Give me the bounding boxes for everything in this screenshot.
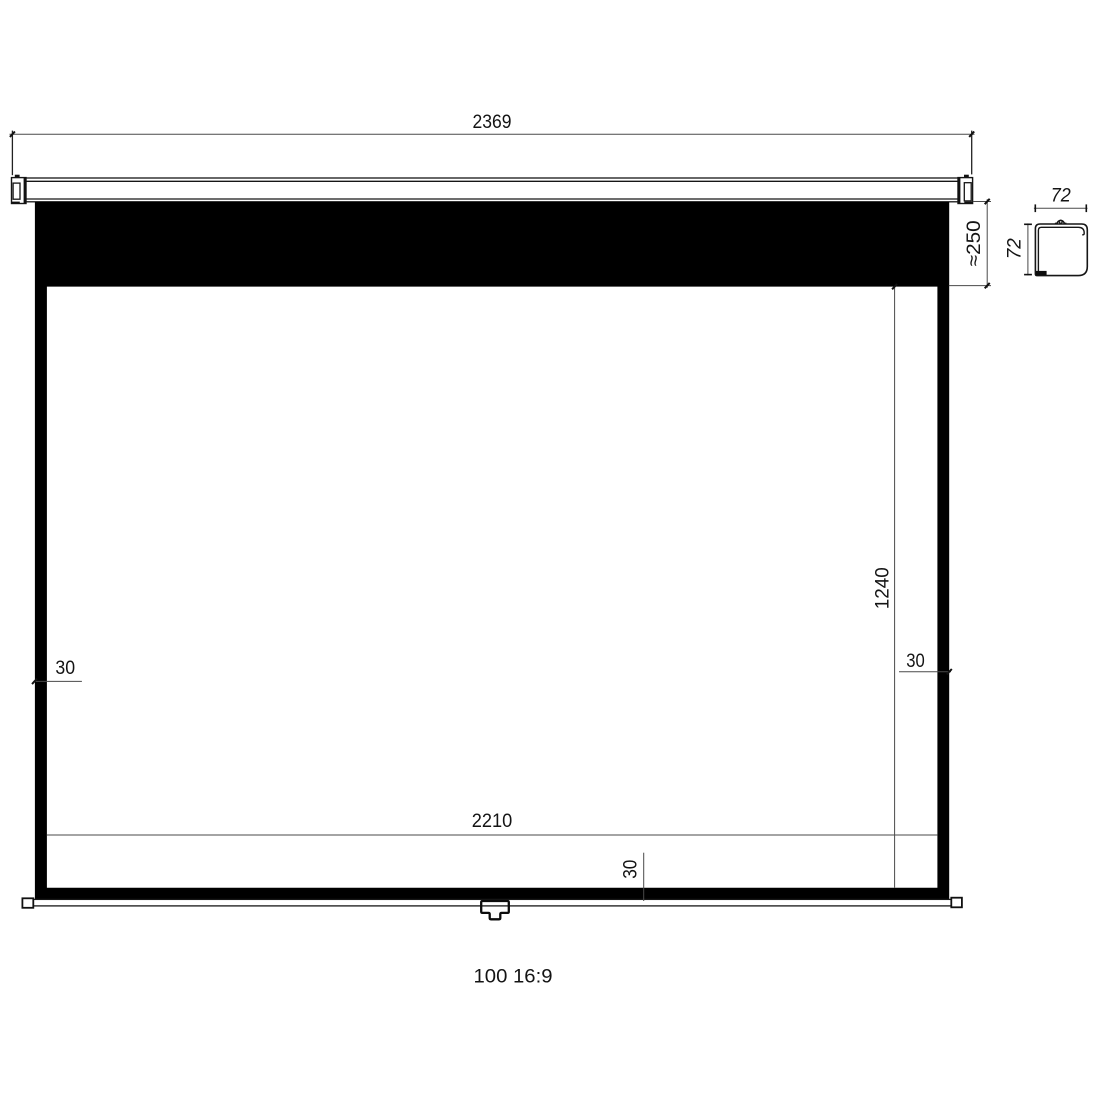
svg-text:30: 30 (619, 860, 641, 879)
svg-text:72: 72 (1003, 238, 1025, 259)
svg-text:72: 72 (1051, 184, 1071, 206)
svg-text:1240: 1240 (872, 567, 894, 609)
svg-text:≈250: ≈250 (963, 220, 985, 266)
svg-text:100 16:9: 100 16:9 (474, 965, 553, 987)
svg-text:2369: 2369 (473, 111, 512, 133)
svg-text:30: 30 (906, 650, 925, 672)
svg-text:30: 30 (55, 657, 75, 679)
svg-text:2210: 2210 (472, 810, 513, 832)
